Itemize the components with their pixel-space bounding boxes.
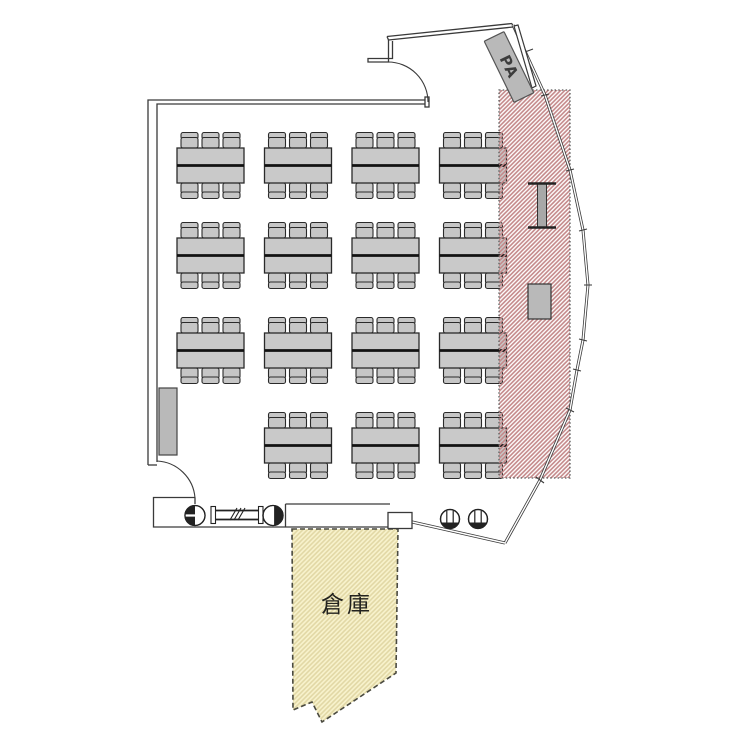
chair xyxy=(398,282,415,289)
chair xyxy=(356,138,373,149)
table-group xyxy=(352,133,419,199)
chair xyxy=(398,323,415,334)
chair xyxy=(377,138,394,149)
chair xyxy=(269,323,286,334)
chair xyxy=(444,377,461,384)
chair xyxy=(465,323,482,334)
chair xyxy=(181,323,198,334)
partition-symbol xyxy=(211,507,263,524)
chair xyxy=(444,138,461,149)
chair xyxy=(269,228,286,239)
stool-symbols xyxy=(441,510,488,529)
chair xyxy=(311,282,328,289)
stool-symbol-icon xyxy=(469,510,488,529)
chair xyxy=(377,323,394,334)
chair xyxy=(356,323,373,334)
chair xyxy=(223,282,240,289)
chair xyxy=(290,192,307,199)
chair xyxy=(311,377,328,384)
stage-zone xyxy=(499,90,570,478)
chair xyxy=(311,418,328,429)
chair xyxy=(465,138,482,149)
wall-step-box xyxy=(388,513,412,529)
floor-plan-canvas: 倉庫 xyxy=(0,0,750,750)
table-group xyxy=(440,318,507,384)
chair xyxy=(465,228,482,239)
chair xyxy=(465,282,482,289)
chair xyxy=(181,138,198,149)
chair xyxy=(290,418,307,429)
chair xyxy=(465,377,482,384)
storage-area: 倉庫 xyxy=(292,529,398,722)
chair xyxy=(356,418,373,429)
wall-top-door-jamb xyxy=(368,40,393,62)
chair xyxy=(377,377,394,384)
chair xyxy=(311,228,328,239)
chair xyxy=(465,418,482,429)
table-group xyxy=(265,133,332,199)
chair xyxy=(181,192,198,199)
chair xyxy=(290,228,307,239)
column-symbol-icon xyxy=(263,506,283,526)
bottom-band-symbols xyxy=(185,506,283,526)
chair xyxy=(269,377,286,384)
tables-layer xyxy=(177,133,507,479)
chair xyxy=(377,228,394,239)
chair xyxy=(398,138,415,149)
chair xyxy=(465,472,482,479)
chair xyxy=(181,282,198,289)
chair xyxy=(223,323,240,334)
table-group xyxy=(177,223,244,289)
door-swing-bottom-left xyxy=(157,461,195,498)
chair xyxy=(290,138,307,149)
chair xyxy=(269,418,286,429)
chair xyxy=(377,472,394,479)
storage-label: 倉庫 xyxy=(321,592,373,618)
table-group xyxy=(440,413,507,479)
wall-board-left xyxy=(159,388,177,455)
chair xyxy=(444,192,461,199)
chair xyxy=(202,377,219,384)
chair xyxy=(356,472,373,479)
chair xyxy=(202,228,219,239)
chair xyxy=(269,192,286,199)
column-symbol-icon xyxy=(185,506,205,526)
table-group xyxy=(352,318,419,384)
table-group xyxy=(440,223,507,289)
table-group xyxy=(265,413,332,479)
chair xyxy=(311,323,328,334)
table-group xyxy=(352,223,419,289)
chair xyxy=(444,282,461,289)
chair xyxy=(444,418,461,429)
chair xyxy=(356,228,373,239)
chair xyxy=(290,472,307,479)
chair xyxy=(290,323,307,334)
wall-bottom-mid xyxy=(286,504,391,527)
chair xyxy=(223,138,240,149)
chair xyxy=(223,192,240,199)
chair xyxy=(311,192,328,199)
chair xyxy=(269,138,286,149)
floor-plan-svg: 倉庫 xyxy=(0,0,750,750)
chair xyxy=(356,282,373,289)
chair xyxy=(356,192,373,199)
chair xyxy=(202,138,219,149)
chair xyxy=(223,377,240,384)
chair xyxy=(444,472,461,479)
chair xyxy=(202,282,219,289)
chair xyxy=(290,377,307,384)
chair xyxy=(377,192,394,199)
chair xyxy=(377,282,394,289)
chair xyxy=(377,418,394,429)
chair xyxy=(356,377,373,384)
stool-symbol-icon xyxy=(441,510,460,529)
chair xyxy=(223,228,240,239)
chair xyxy=(398,472,415,479)
chair xyxy=(311,138,328,149)
door-swing-top xyxy=(388,62,428,102)
storage-area-hatch xyxy=(292,529,398,722)
chair xyxy=(444,323,461,334)
chair xyxy=(444,228,461,239)
chair xyxy=(398,418,415,429)
chair xyxy=(181,228,198,239)
chair xyxy=(465,192,482,199)
chair xyxy=(269,472,286,479)
table-group xyxy=(265,318,332,384)
chair xyxy=(398,228,415,239)
table-group xyxy=(440,133,507,199)
table-group xyxy=(265,223,332,289)
stage-equipment-box xyxy=(528,284,551,319)
chair xyxy=(181,377,198,384)
table-group xyxy=(352,413,419,479)
chair xyxy=(290,282,307,289)
chair xyxy=(398,377,415,384)
chair xyxy=(202,192,219,199)
table-group xyxy=(177,318,244,384)
chair xyxy=(311,472,328,479)
table-group xyxy=(177,133,244,199)
chair xyxy=(398,192,415,199)
chair xyxy=(202,323,219,334)
chair xyxy=(269,282,286,289)
